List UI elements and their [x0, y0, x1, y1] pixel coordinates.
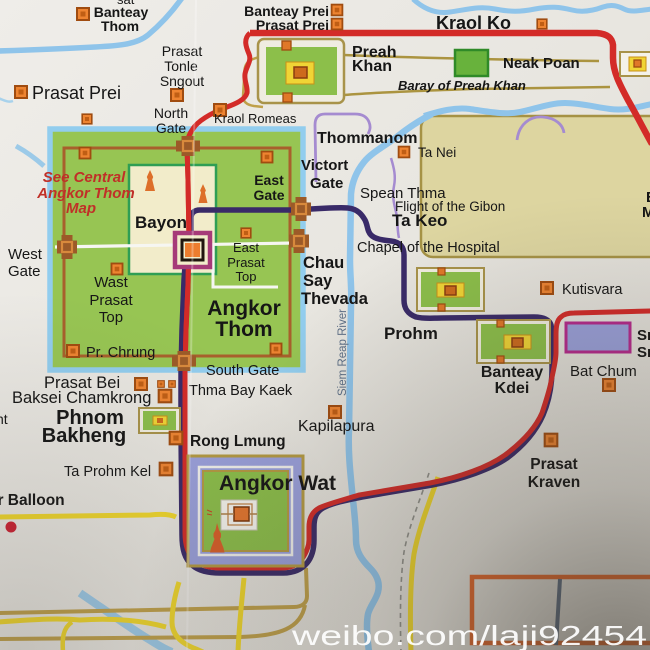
- svg-text:weibo.com/laji92454: weibo.com/laji92454: [291, 620, 647, 650]
